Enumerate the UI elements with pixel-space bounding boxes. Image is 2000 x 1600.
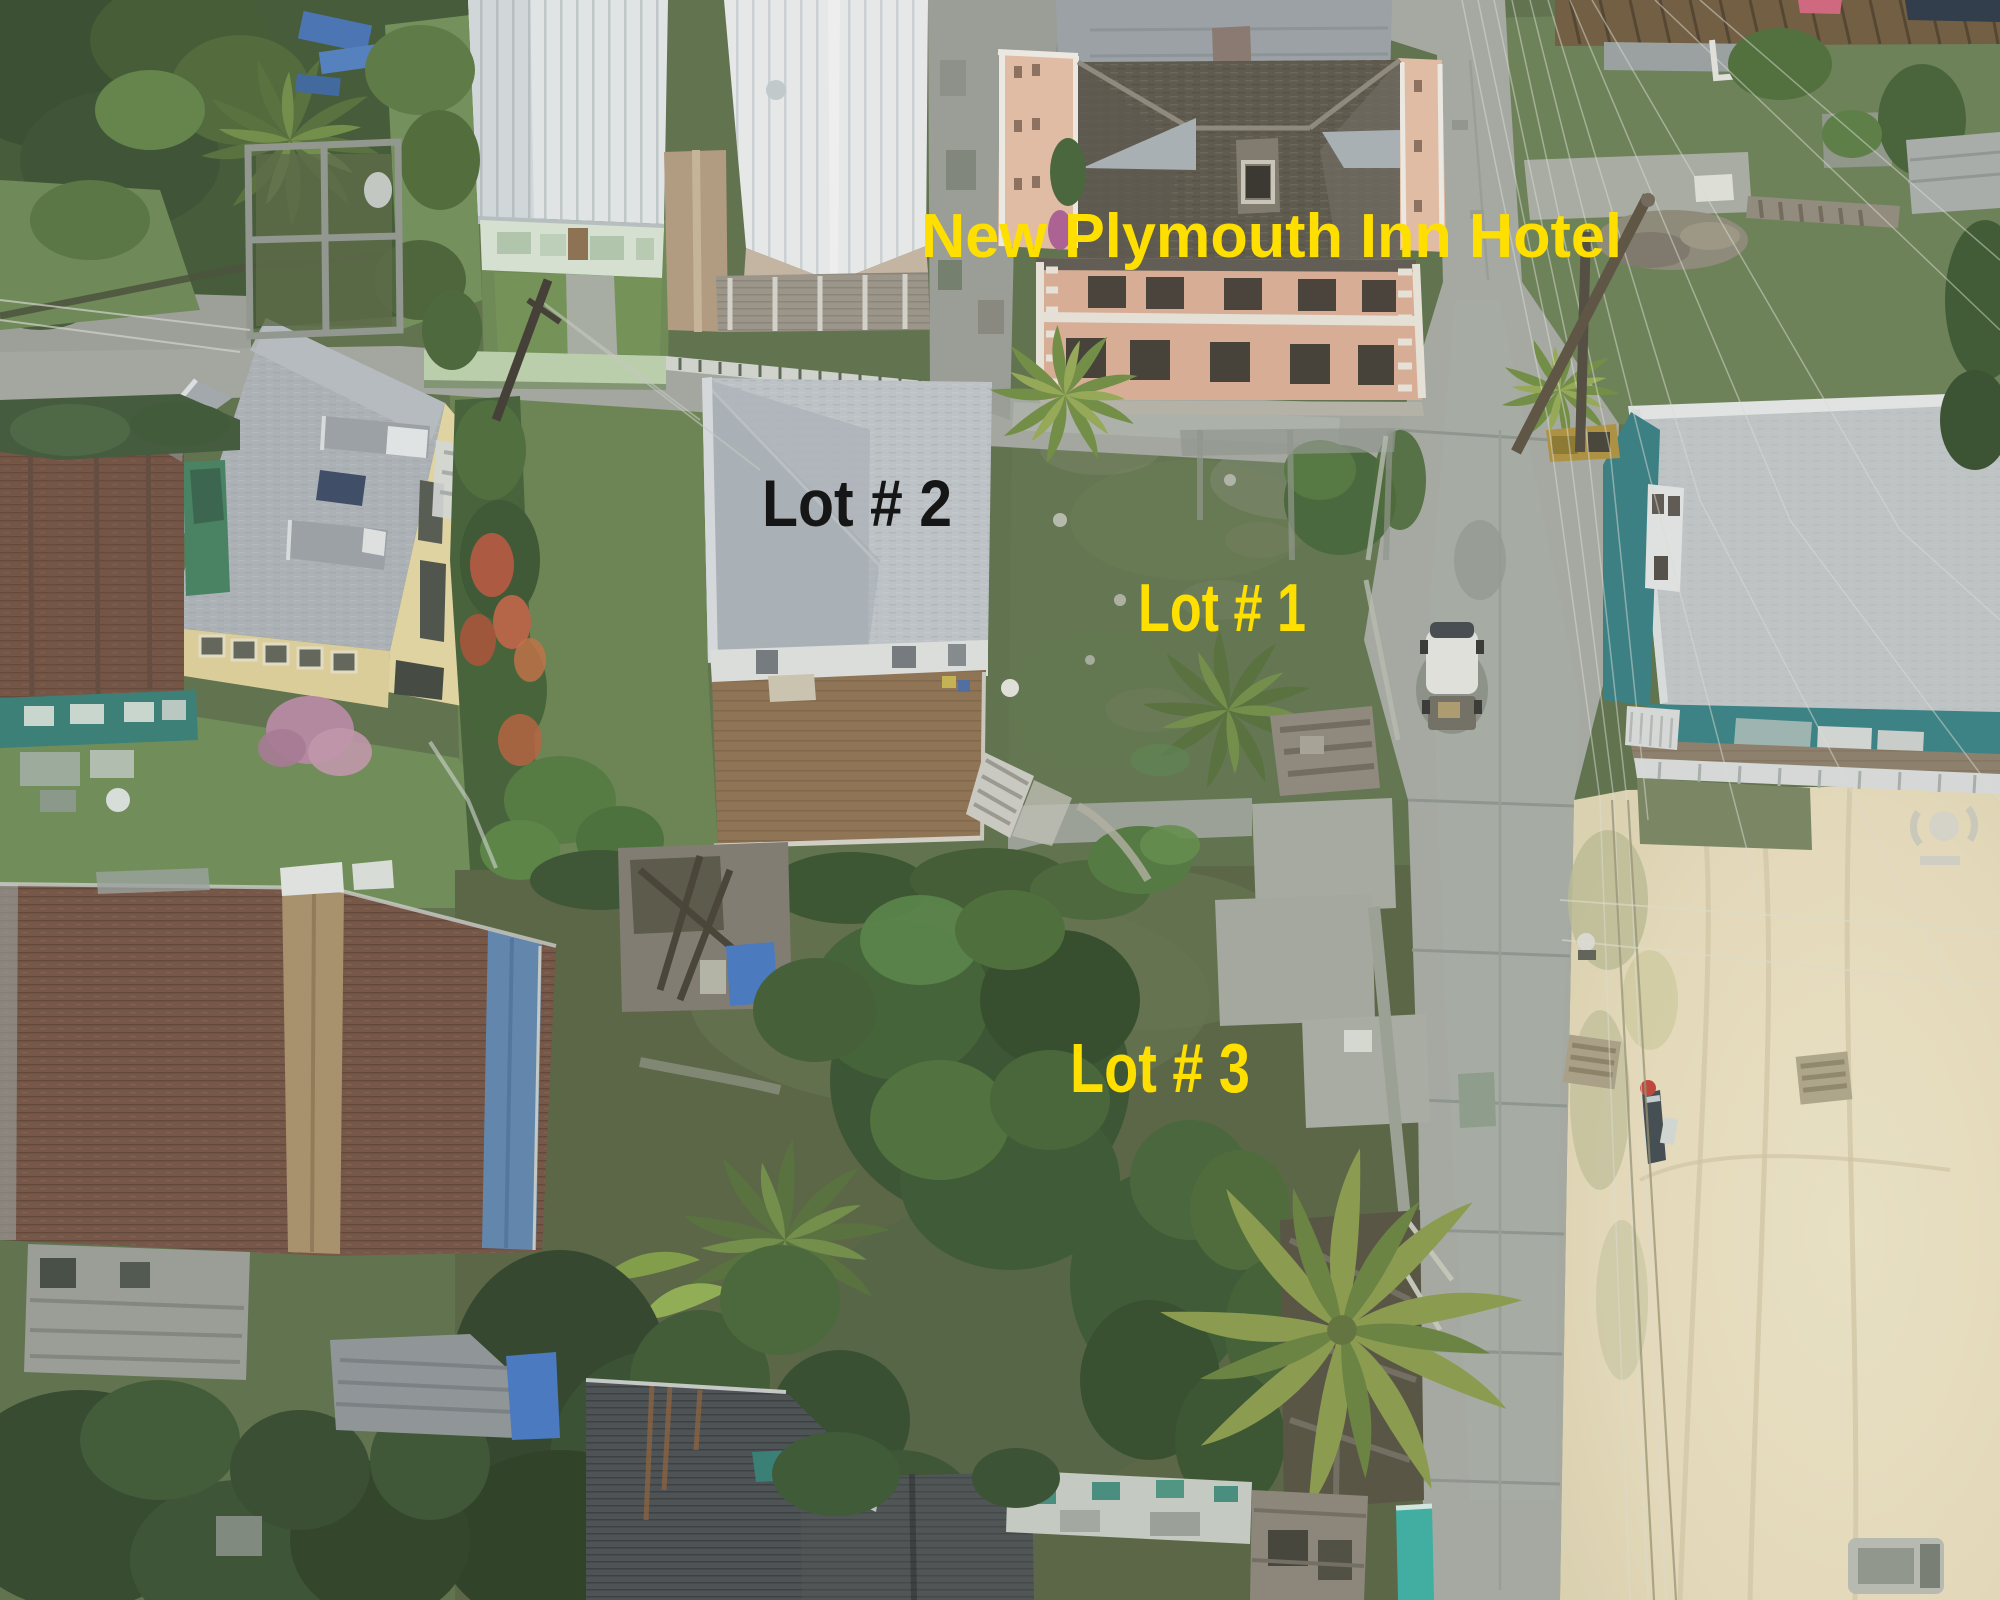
svg-text:Lot # 2: Lot # 2 [762, 466, 952, 540]
svg-text:New Plymouth Inn Hotel: New Plymouth Inn Hotel [921, 202, 1622, 271]
svg-text:Lot # 1: Lot # 1 [1138, 570, 1306, 646]
svg-text:Lot # 3: Lot # 3 [1070, 1029, 1250, 1107]
